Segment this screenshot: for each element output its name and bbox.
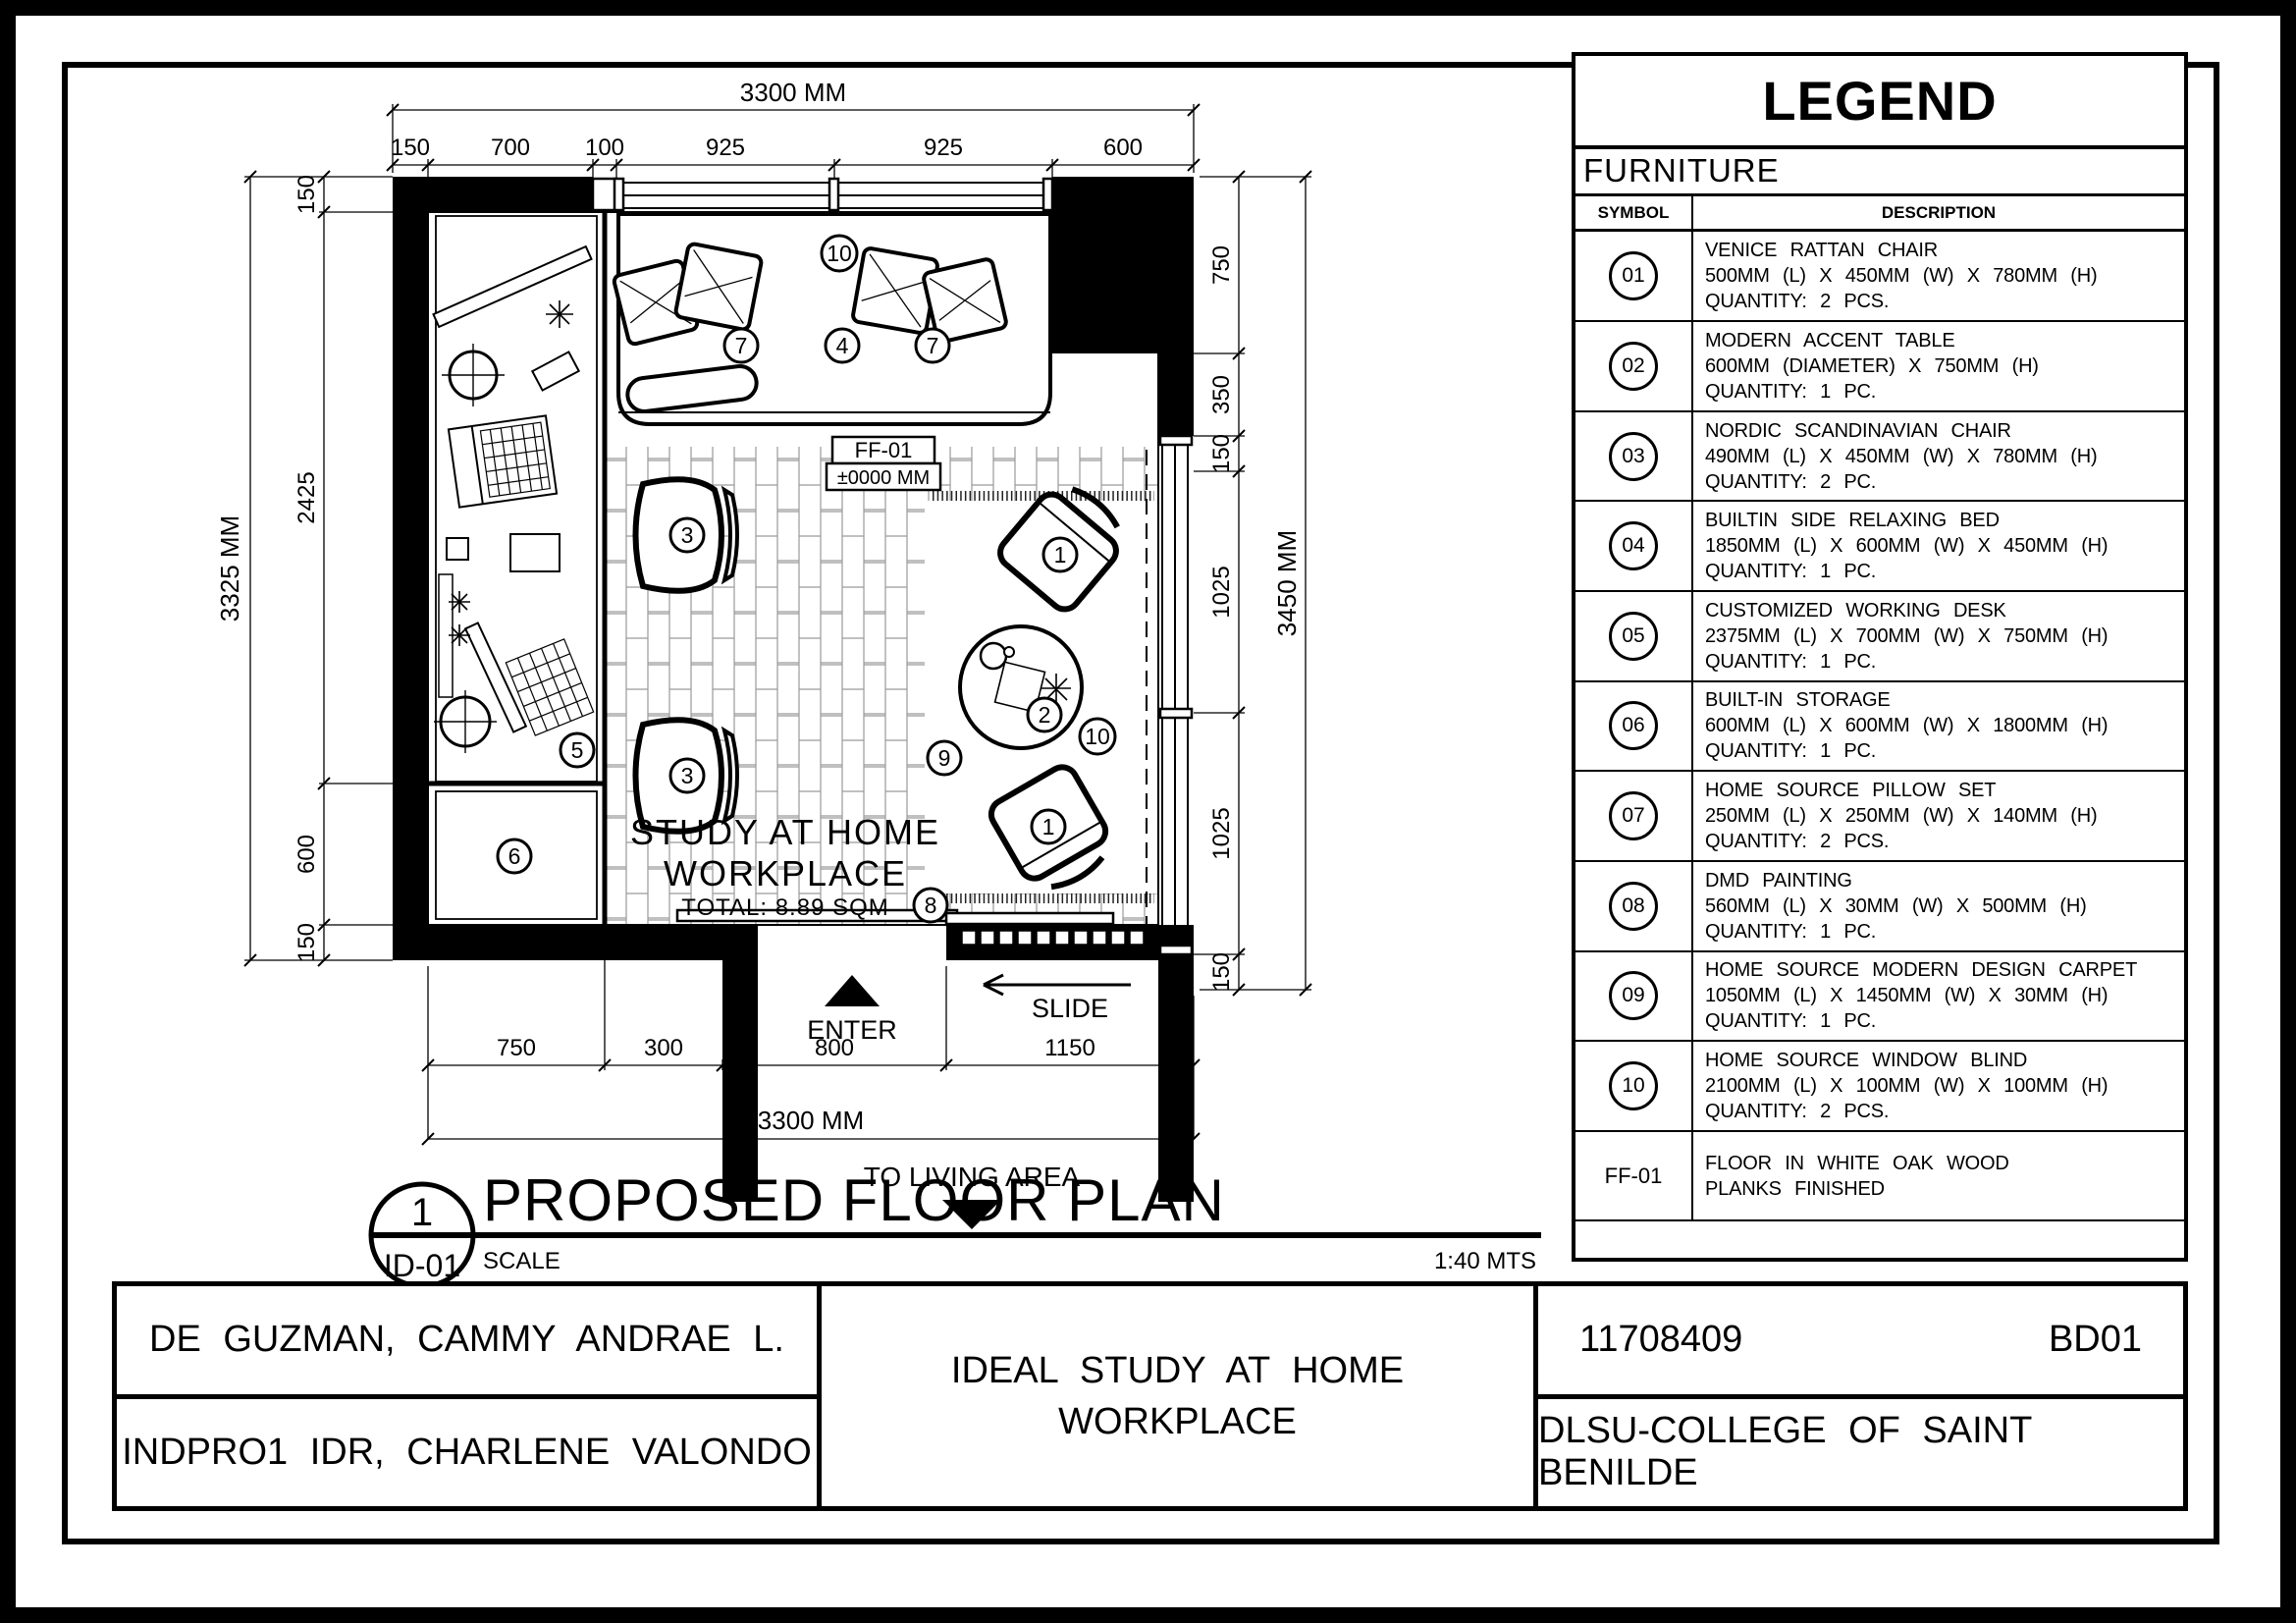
plan-number: 1 — [411, 1191, 433, 1234]
svg-text:3300 MM: 3300 MM — [758, 1106, 864, 1135]
plan-sheet-ref: ID-01 — [384, 1248, 460, 1281]
item-dimensions: 2375MM (L) X 700MM (W) X 750MM (H) — [1705, 623, 2108, 649]
room-total: TOTAL: 8.89 SQM — [681, 894, 889, 921]
accent-table-02 — [960, 626, 1082, 748]
legend-item-07: 07 HOME SOURCE PILLOW SET250MM (L) X 250… — [1575, 772, 2184, 862]
symbol-badge: 09 — [1609, 971, 1658, 1020]
legend-item-09: 09 HOME SOURCE MODERN DESIGN CARPET1050M… — [1575, 952, 2184, 1043]
project-title: IDEAL STUDY AT HOME WORKPLACE — [822, 1286, 1538, 1506]
legend-title: LEGEND — [1575, 56, 2184, 149]
svg-text:7: 7 — [927, 333, 939, 358]
legend-col-symbol: SYMBOL — [1575, 196, 1693, 230]
scale-label: SCALE — [483, 1248, 561, 1274]
svg-text:5: 5 — [571, 737, 584, 763]
floor-finish-symbol: FF-01 — [1605, 1163, 1663, 1189]
legend-item-01: 01 VENICE RATTAN CHAIR500MM (L) X 450MM … — [1575, 232, 2184, 322]
symbol-badge: 01 — [1609, 251, 1658, 300]
legend-item-10: 10 HOME SOURCE WINDOW BLIND2100MM (L) X … — [1575, 1042, 2184, 1132]
title-block: DE GUZMAN, CAMMY ANDRAE L. INDPRO1 IDR, … — [112, 1281, 2188, 1511]
symbol-badge: 10 — [1609, 1061, 1658, 1110]
svg-text:6: 6 — [508, 843, 521, 869]
item-quantity: QUANTITY: 1 PC. — [1705, 649, 1876, 675]
item-dimensions: 560MM (L) X 30MM (W) X 500MM (H) — [1705, 893, 2087, 919]
svg-text:STUDY AT HOME: STUDY AT HOME — [630, 812, 940, 852]
drawing-sheet: FF-01 ±0000 MM — [0, 0, 2296, 1623]
legend-item-06: 06 BUILT-IN STORAGE600MM (L) X 600MM (W)… — [1575, 682, 2184, 773]
svg-text:150: 150 — [294, 923, 320, 962]
item-dimensions: 1850MM (L) X 600MM (W) X 450MM (H) — [1705, 533, 2108, 559]
svg-text:9: 9 — [938, 745, 951, 771]
svg-text:925: 925 — [924, 135, 963, 161]
item-name: HOME SOURCE WINDOW BLIND — [1705, 1048, 2027, 1073]
item-dimensions: 490MM (L) X 450MM (W) X 780MM (H) — [1705, 444, 2097, 469]
svg-text:150: 150 — [294, 175, 320, 214]
symbol-badge: 02 — [1609, 342, 1658, 391]
item-name: BUILT-IN STORAGE — [1705, 687, 1891, 713]
item-dimensions: 500MM (L) X 450MM (W) X 780MM (H) — [1705, 263, 2097, 289]
item-name: NORDIC SCANDINAVIAN CHAIR — [1705, 418, 2011, 444]
item-dimensions: 250MM (L) X 250MM (W) X 140MM (H) — [1705, 803, 2097, 829]
scale-value: 1:40 MTS — [1434, 1248, 1536, 1274]
item-quantity: QUANTITY: 2 PC. — [1705, 469, 1876, 495]
svg-text:1150: 1150 — [1044, 1035, 1095, 1061]
legend-empty-row — [1575, 1221, 2184, 1257]
svg-text:3325 MM: 3325 MM — [215, 515, 244, 622]
course-instructor: INDPRO1 IDR, CHARLENE VALONDO — [117, 1399, 817, 1507]
svg-text:150: 150 — [391, 135, 430, 161]
item-dimensions: 600MM (L) X 600MM (W) X 1800MM (H) — [1705, 713, 2108, 738]
svg-text:925: 925 — [706, 135, 745, 161]
svg-text:100: 100 — [585, 135, 624, 161]
floor-plan-svg: FF-01 ±0000 MM — [62, 62, 1572, 1281]
svg-text:1: 1 — [1054, 542, 1067, 568]
item-quantity: QUANTITY: 2 PCS. — [1705, 829, 1889, 854]
svg-text:150: 150 — [1208, 952, 1235, 992]
legend-item-03: 03 NORDIC SCANDINAVIAN CHAIR490MM (L) X … — [1575, 412, 2184, 503]
legend-item-02: 02 MODERN ACCENT TABLE600MM (DIAMETER) X… — [1575, 322, 2184, 412]
svg-text:10: 10 — [827, 241, 852, 266]
item-quantity: QUANTITY: 1 PC. — [1705, 379, 1876, 405]
symbol-badge: 04 — [1609, 521, 1658, 570]
legend-item-04: 04 BUILTIN SIDE RELAXING BED1850MM (L) X… — [1575, 502, 2184, 592]
project-title-line1: IDEAL STUDY AT HOME — [951, 1345, 1404, 1396]
item-name: HOME SOURCE PILLOW SET — [1705, 778, 1996, 803]
item-name: HOME SOURCE MODERN DESIGN CARPET — [1705, 957, 2137, 983]
svg-text:3300 MM: 3300 MM — [740, 78, 846, 107]
svg-text:1025: 1025 — [1208, 566, 1235, 618]
item-name: BUILTIN SIDE RELAXING BED — [1705, 508, 2000, 533]
student-id: 11708409 — [1579, 1319, 1742, 1361]
svg-text:300: 300 — [644, 1035, 683, 1061]
svg-text:600: 600 — [1103, 135, 1143, 161]
item-dimensions: 1050MM (L) X 1450MM (W) X 30MM (H) — [1705, 983, 2108, 1008]
item-name: CUSTOMIZED WORKING DESK — [1705, 598, 2006, 623]
student-name: DE GUZMAN, CAMMY ANDRAE L. — [117, 1286, 817, 1399]
svg-text:3450 MM: 3450 MM — [1272, 530, 1302, 636]
svg-text:350: 350 — [1208, 375, 1235, 414]
symbol-badge: 05 — [1609, 612, 1658, 661]
item-quantity: QUANTITY: 1 PC. — [1705, 559, 1876, 584]
svg-text:600: 600 — [294, 835, 320, 874]
item-name: VENICE RATTAN CHAIR — [1705, 238, 1938, 263]
svg-text:750: 750 — [497, 1035, 536, 1061]
project-title-line2: WORKPLACE — [1058, 1396, 1297, 1447]
symbol-badge: 08 — [1609, 882, 1658, 931]
item-dimensions: 600MM (DIAMETER) X 750MM (H) — [1705, 353, 2039, 379]
item-name: DMD PAINTING — [1705, 868, 1852, 893]
legend-item-05: 05 CUSTOMIZED WORKING DESK2375MM (L) X 7… — [1575, 592, 2184, 682]
svg-text:3: 3 — [681, 522, 694, 548]
svg-text:150: 150 — [1208, 434, 1235, 473]
symbol-badge: 07 — [1609, 791, 1658, 840]
svg-text:1: 1 — [1042, 814, 1055, 839]
legend-item-ff01: FF-01 FLOOR IN WHITE OAK WOODPLANKS FINI… — [1575, 1132, 2184, 1222]
item-quantity: QUANTITY: 2 PCS. — [1705, 289, 1889, 314]
floor-finish-line2: PLANKS FINISHED — [1705, 1176, 1885, 1202]
svg-text:700: 700 — [491, 135, 530, 161]
legend-header-row: SYMBOL DESCRIPTION — [1575, 196, 2184, 233]
plan-title-text: PROPOSED FLOOR PLAN — [483, 1167, 1225, 1233]
slide-marker: SLIDE — [984, 975, 1131, 1023]
plan-title: 1 ID-01 PROPOSED FLOOR PLAN SCALE 1:40 M… — [371, 1167, 1541, 1281]
svg-text:8: 8 — [925, 893, 937, 918]
svg-text:7: 7 — [735, 333, 748, 358]
floor-finish-line1: FLOOR IN WHITE OAK WOOD — [1705, 1151, 2009, 1176]
symbol-badge: 06 — [1609, 701, 1658, 750]
item-quantity: QUANTITY: 2 PCS. — [1705, 1099, 1889, 1124]
floor-finish-tag: FF-01 ±0000 MM — [827, 437, 940, 490]
window-top — [593, 179, 1052, 210]
svg-text:750: 750 — [1208, 245, 1235, 285]
svg-text:2425: 2425 — [294, 471, 320, 523]
svg-text:WORKPLACE: WORKPLACE — [664, 853, 907, 893]
svg-text:10: 10 — [1085, 724, 1110, 749]
legend-col-description: DESCRIPTION — [1693, 196, 2184, 230]
item-quantity: QUANTITY: 1 PC. — [1705, 1008, 1876, 1034]
symbol-badge: 03 — [1609, 432, 1658, 481]
svg-text:800: 800 — [815, 1035, 854, 1061]
window-right — [1160, 436, 1192, 954]
legend-category: FURNITURE — [1575, 149, 2184, 196]
item-quantity: QUANTITY: 1 PC. — [1705, 738, 1876, 764]
block-code: BD01 — [2049, 1319, 2142, 1361]
item-quantity: QUANTITY: 1 PC. — [1705, 919, 1876, 945]
svg-text:1025: 1025 — [1208, 807, 1235, 859]
legend-item-08: 08 DMD PAINTING560MM (L) X 30MM (W) X 50… — [1575, 862, 2184, 952]
floor-level-text: ±0000 MM — [837, 467, 930, 489]
floor-tag-text: FF-01 — [855, 438, 913, 462]
svg-text:SLIDE: SLIDE — [1032, 994, 1108, 1023]
school-name: DLSU-COLLEGE OF SAINT BENILDE — [1538, 1399, 2183, 1507]
item-dimensions: 2100MM (L) X 100MM (W) X 100MM (H) — [1705, 1073, 2108, 1099]
item-name: MODERN ACCENT TABLE — [1705, 328, 1954, 353]
svg-text:2: 2 — [1039, 702, 1051, 728]
legend-panel: LEGEND FURNITURE SYMBOL DESCRIPTION 01 V… — [1572, 52, 2188, 1262]
svg-text:4: 4 — [836, 333, 849, 358]
svg-text:3: 3 — [681, 763, 694, 788]
